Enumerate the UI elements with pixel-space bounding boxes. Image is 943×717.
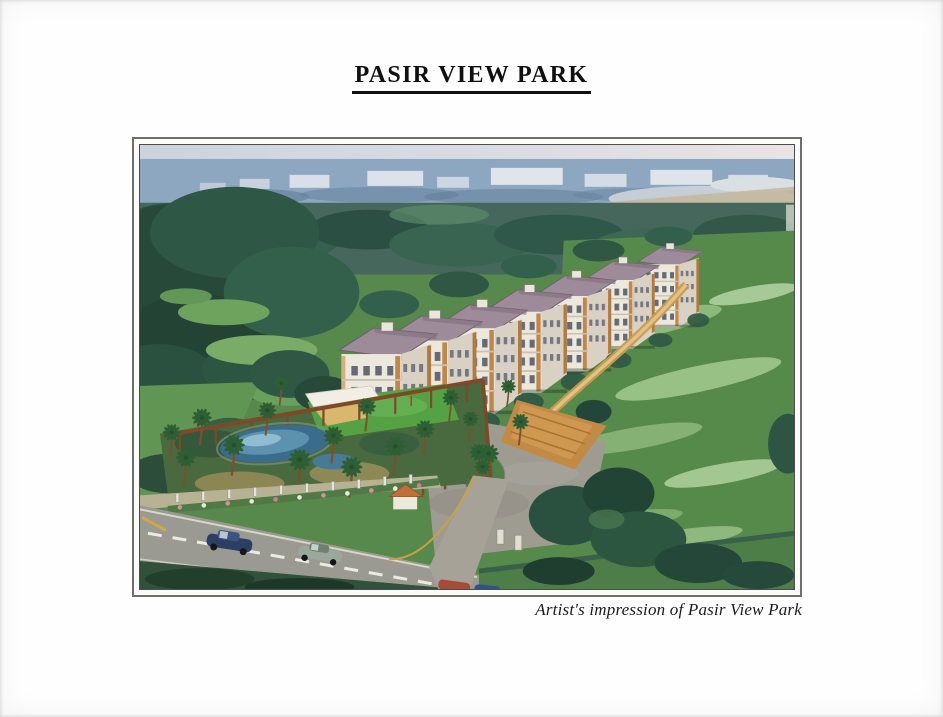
page-title-text: PASIR VIEW PARK [352,62,592,94]
artists-impression-illustration [139,144,795,590]
gate-pillar [515,535,522,550]
figure-caption: Artist's impression of Pasir View Park [388,600,802,620]
gate-pillar [497,529,504,544]
page-title: PASIR VIEW PARK [0,62,943,94]
brochure-page: PASIR VIEW PARK [0,0,943,717]
picture-frame [132,137,802,597]
